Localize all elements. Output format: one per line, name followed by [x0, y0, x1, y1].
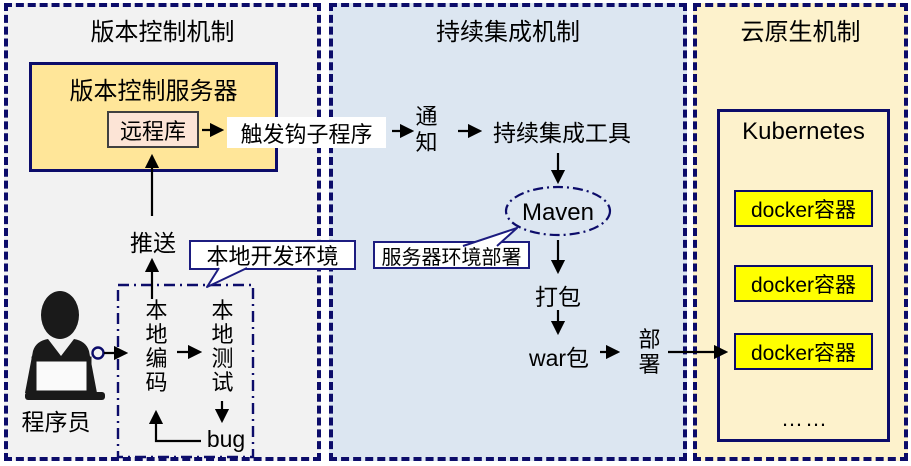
local-dev-env-callout: 本地开发环境 — [189, 240, 356, 270]
docker-container-box-2: docker容器 — [734, 265, 873, 302]
cicd-pipeline-diagram: 远程库 触发钩子程序 本地开发环境 服务器环境部署 docker容器 docke… — [0, 0, 911, 466]
docker-container-box-3: docker容器 — [734, 333, 873, 370]
boxes-layer: 远程库 触发钩子程序 本地开发环境 服务器环境部署 docker容器 docke… — [0, 0, 911, 466]
trigger-hook-label: 触发钩子程序 — [227, 117, 386, 148]
remote-repo-box: 远程库 — [107, 111, 199, 148]
docker-container-box-1: docker容器 — [734, 190, 873, 227]
server-env-deploy-callout: 服务器环境部署 — [373, 241, 530, 269]
